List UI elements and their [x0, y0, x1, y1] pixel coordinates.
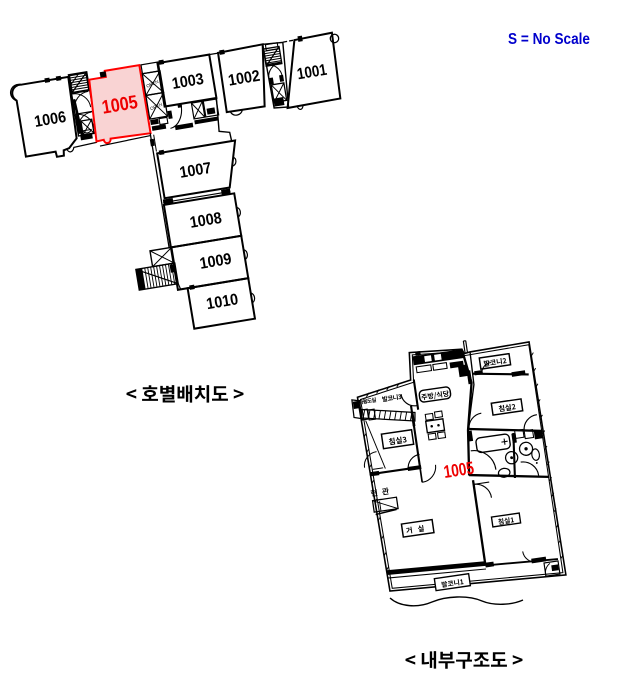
svg-text:S = No Scale: S = No Scale: [508, 31, 590, 48]
